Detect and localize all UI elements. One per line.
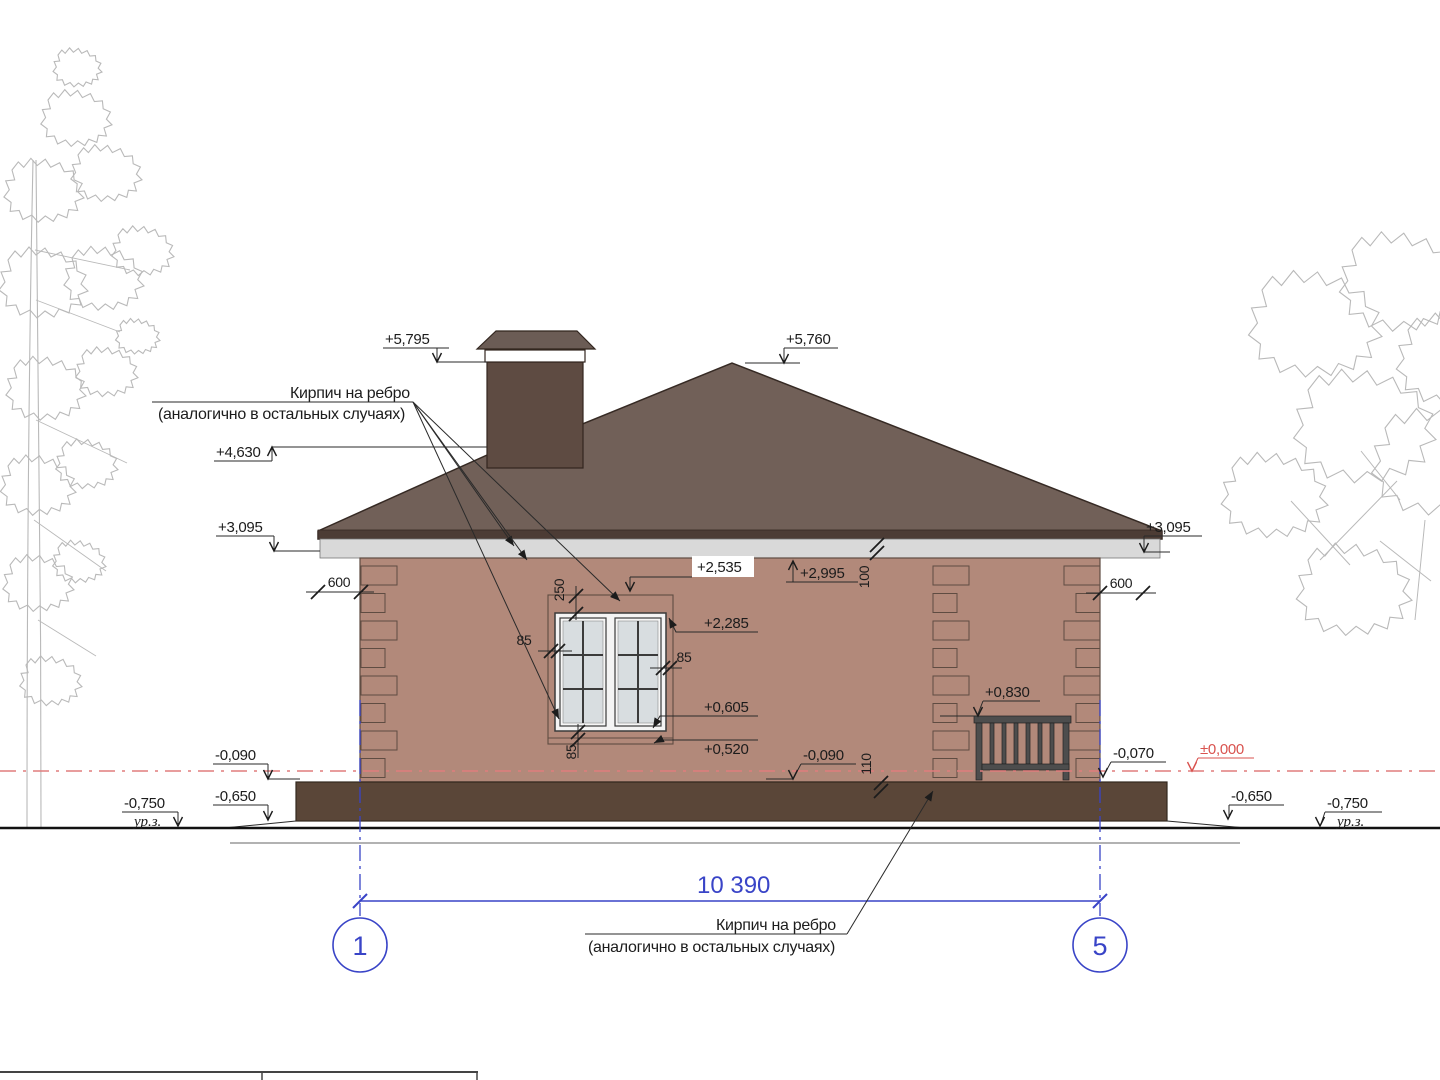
svg-text:85: 85 — [517, 632, 532, 648]
svg-text:+0,520: +0,520 — [704, 741, 749, 758]
elevation-sheet: 10 390 1 5 +5,795 +5,760 +4,630 +3,095 +… — [0, 0, 1440, 1080]
level-ridge: +5,760 — [745, 331, 838, 363]
axis-number-5: 5 — [1092, 931, 1107, 961]
svg-text:-0,650: -0,650 — [1231, 788, 1272, 805]
elevation-canvas: 10 390 1 5 +5,795 +5,760 +4,630 +3,095 +… — [0, 0, 1440, 1080]
level-ground-left: -0,750 ур.з. — [122, 795, 183, 830]
svg-text:+5,795: +5,795 — [385, 331, 430, 348]
svg-text:600: 600 — [1110, 575, 1133, 591]
window-sash-right — [615, 618, 661, 726]
level-blind-left: -0,650 — [213, 788, 273, 820]
svg-text:100: 100 — [856, 565, 872, 588]
level-ground-right: -0,750 ур.з. — [1316, 795, 1383, 830]
brick-note-bottom-line2: (аналогично в остальных случаях) — [588, 939, 835, 956]
chimney-body — [487, 362, 583, 468]
svg-text:-0,090: -0,090 — [803, 747, 844, 764]
svg-text:250: 250 — [551, 578, 567, 601]
svg-text:+2,285: +2,285 — [704, 615, 749, 632]
window — [548, 595, 673, 744]
svg-text:+5,760: +5,760 — [786, 331, 831, 348]
level-eave-left: +3,095 — [216, 519, 320, 551]
roof-slope — [318, 363, 1162, 539]
overall-dimension: 10 390 — [697, 872, 770, 899]
svg-text:+0,830: +0,830 — [985, 684, 1030, 701]
roof-fascia — [318, 530, 1162, 539]
right-tree-sketch — [1221, 232, 1440, 636]
plinth-foundation — [296, 782, 1167, 821]
svg-text:+2,535: +2,535 — [697, 559, 742, 576]
chimney — [477, 331, 595, 468]
svg-text:85: 85 — [677, 649, 692, 665]
level-blind-right: -0,650 — [1224, 788, 1285, 819]
ground — [0, 821, 1440, 843]
brick-note-top-line1: Кирпич на ребро — [290, 385, 410, 402]
svg-text:600: 600 — [328, 574, 351, 590]
title-block-table — [0, 1072, 478, 1080]
ground-level-label-left: ур.з. — [132, 814, 161, 830]
window-sash-left — [560, 618, 606, 726]
brick-note-top-line2: (аналогично в остальных случаях) — [158, 406, 405, 423]
chimney-cap — [477, 331, 595, 349]
roof — [318, 363, 1162, 539]
ground-level-label-right: ур.з. — [1335, 814, 1364, 830]
railing-bottom-rail — [982, 764, 1069, 770]
level-hip-ridge: +4,630 — [214, 444, 487, 461]
axis-number-1: 1 — [352, 931, 367, 961]
brick-note-bottom-line1: Кирпич на ребро — [716, 917, 836, 934]
level-zero: ±0,000 — [1188, 741, 1255, 771]
level-chimney-top: +5,795 — [383, 331, 487, 362]
svg-text:+0,605: +0,605 — [704, 699, 749, 716]
level-plinth-left: -0,090 — [213, 747, 300, 779]
left-pine-tree-sketch — [0, 48, 174, 828]
svg-text:±0,000: ±0,000 — [1200, 741, 1244, 758]
svg-text:-0,750: -0,750 — [1327, 795, 1368, 812]
svg-text:+3,095: +3,095 — [218, 519, 263, 536]
eave-cornice-band — [320, 539, 1160, 558]
svg-text:110: 110 — [858, 753, 874, 775]
svg-text:-0,650: -0,650 — [215, 788, 256, 805]
svg-text:-0,070: -0,070 — [1113, 745, 1154, 762]
svg-text:+3,095: +3,095 — [1146, 519, 1191, 536]
svg-text:+2,995: +2,995 — [800, 565, 845, 582]
chimney-vent — [485, 350, 585, 362]
svg-text:-0,090: -0,090 — [215, 747, 256, 764]
svg-text:-0,750: -0,750 — [124, 795, 165, 812]
level-plinth-right: -0,070 — [1099, 745, 1167, 777]
railing-top-rail — [974, 716, 1071, 723]
svg-text:+4,630: +4,630 — [216, 444, 261, 461]
